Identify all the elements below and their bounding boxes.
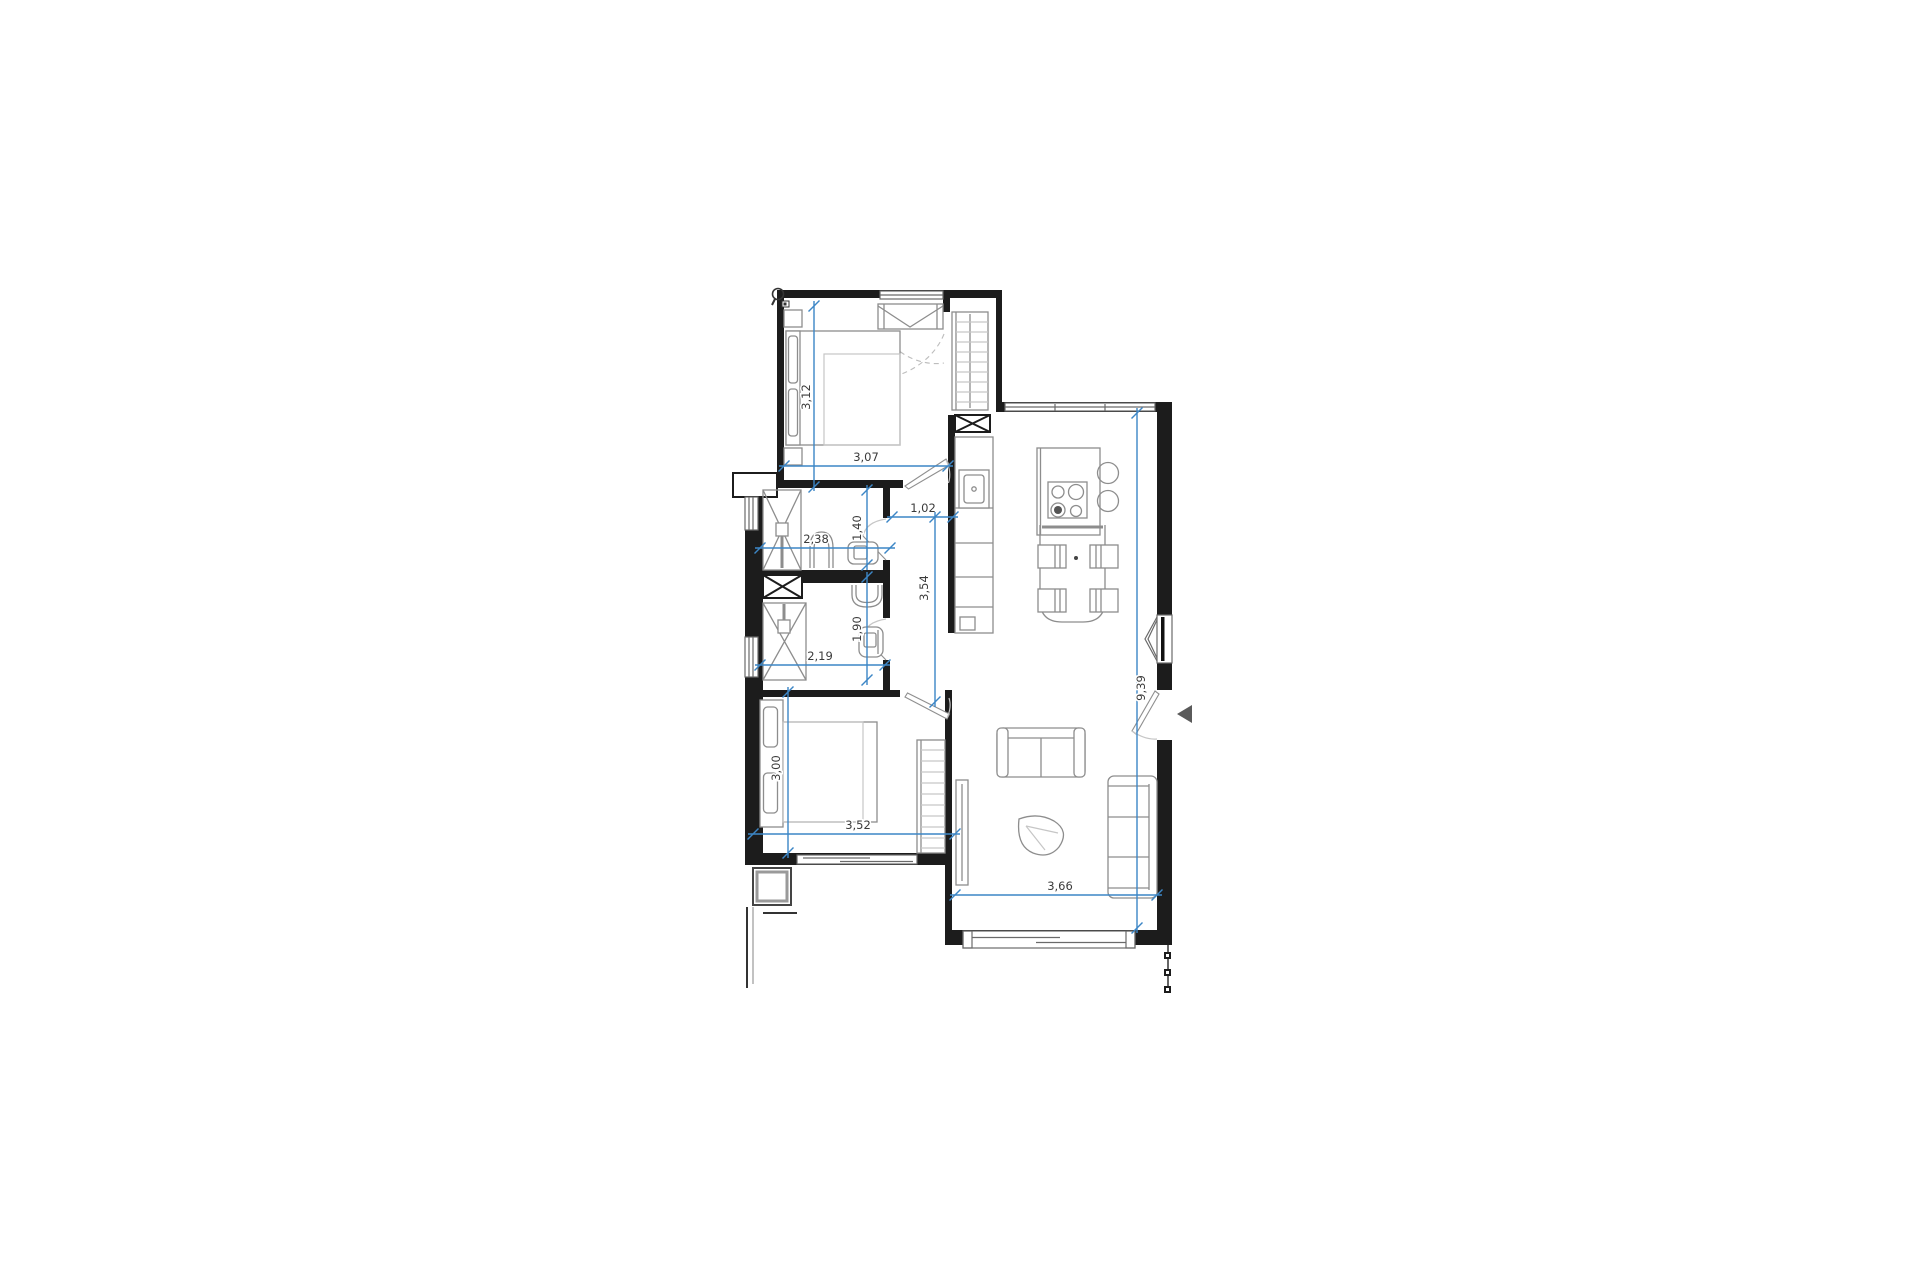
kitchen-counter [955,437,993,633]
svg-text:3,07: 3,07 [853,450,879,464]
bathroom2-window [745,637,758,677]
bathroom1-window [745,497,758,530]
balcony-railing [1165,945,1170,993]
living-furniture [956,728,1157,898]
shaft-bathrooms [763,575,802,598]
chair [1090,545,1118,568]
sofa-three-seat [1108,776,1157,898]
svg-text:1,40: 1,40 [850,515,864,541]
chair [1038,545,1066,568]
stool [1098,463,1119,484]
closet-swing-arc [896,334,944,376]
bedroom2-window [797,855,917,864]
shaft-kitchen [955,415,990,432]
svg-text:1,90: 1,90 [850,616,864,642]
dining-table [1038,525,1118,622]
ac-unit-box [753,868,791,905]
coffee-table [1019,816,1064,855]
toilet [848,542,878,564]
wardrobe [952,312,988,410]
floor-plan-canvas: 3,12 3,07 1,02 2,38 1,40 3,54 [720,270,1220,1030]
tv-console [956,780,968,885]
chair [1038,589,1066,612]
bathroom2-fixtures [763,585,883,680]
party-wall-stub [747,907,797,988]
wardrobe [917,740,945,853]
svg-text:3,66: 3,66 [1047,879,1073,893]
svg-text:3,12: 3,12 [799,384,813,410]
living-sliding-window [963,931,1135,948]
dim-hallway-length: 3,54 [917,512,941,708]
svg-text:3,54: 3,54 [917,575,931,601]
right-wall-window [1145,615,1172,663]
chair [1090,589,1118,612]
svg-text:2,38: 2,38 [803,532,829,546]
svg-text:2,19: 2,19 [807,649,833,663]
svg-text:9,39: 9,39 [1134,675,1148,701]
bedroom2-door [905,693,950,719]
dim-bedroom1-width: 3,07 [779,450,954,472]
kitchen-furniture [955,437,1119,633]
nightstand [784,310,802,327]
cooktop [1048,482,1087,518]
bedroom1-door [905,459,950,489]
floor-plan-page: { "plan": { "dimensions": { "bedroom1_de… [0,0,1920,1280]
svg-text:3,52: 3,52 [845,818,871,832]
svg-text:3,00: 3,00 [769,755,783,781]
kitchen-window [1005,403,1155,411]
dim-hallway-width: 1,02 [887,501,959,523]
entrance-arrow-icon [1177,705,1192,723]
sofa-two-seat [997,728,1085,777]
svg-text:1,02: 1,02 [910,501,936,515]
shower [763,603,806,680]
stool [1098,491,1119,512]
shower [763,490,801,570]
kitchen-island [1037,448,1119,535]
closet [878,304,943,329]
wall-niche [733,473,777,497]
bedroom1-window [880,291,943,299]
